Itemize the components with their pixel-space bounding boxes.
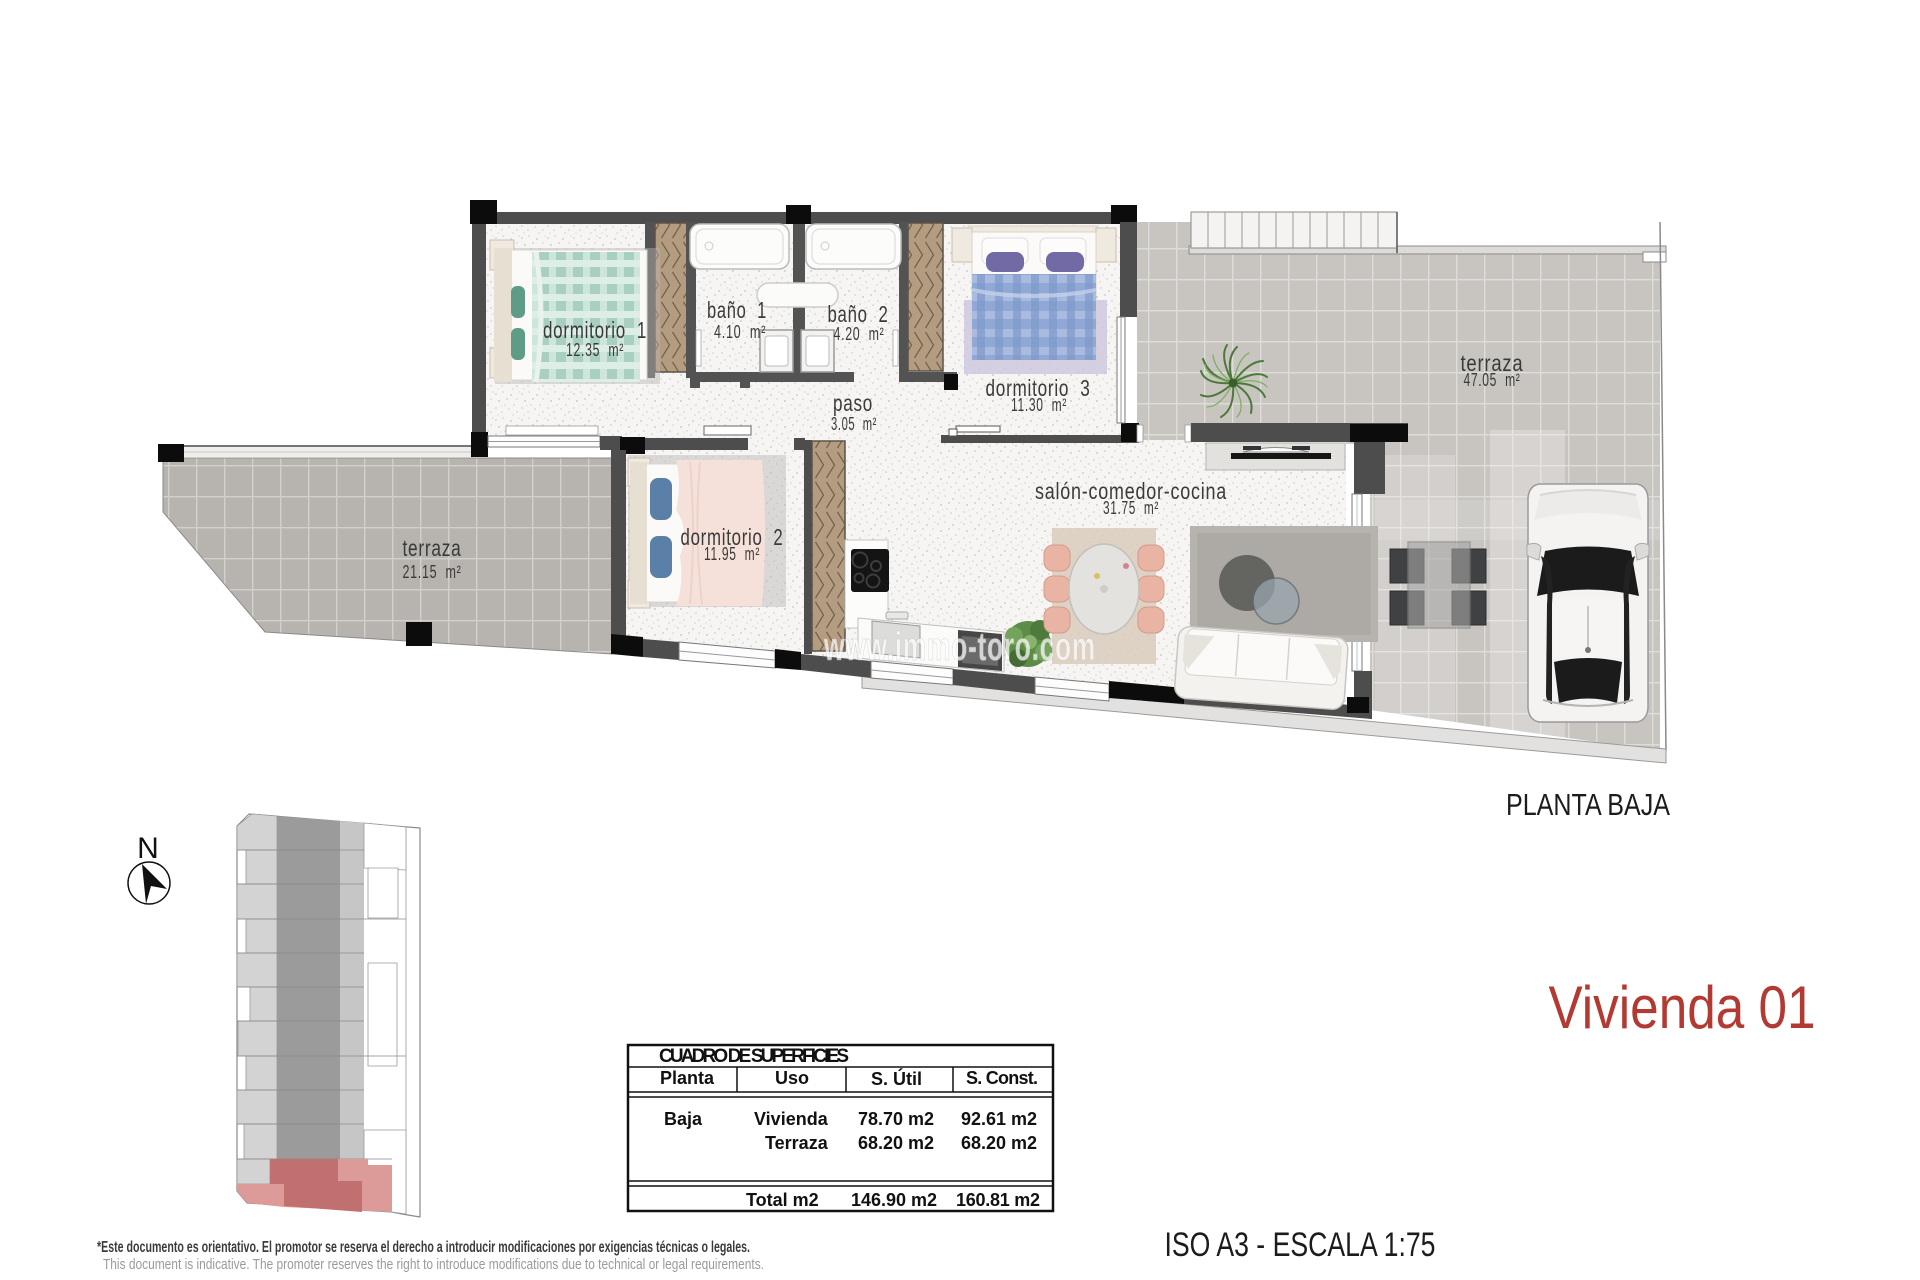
svg-text:3.05 m²: 3.05 m² (831, 414, 877, 434)
svg-text:Total m2: Total m2 (746, 1190, 819, 1210)
svg-text:21.15 m²: 21.15 m² (403, 562, 462, 582)
svg-text:www.immo-toro.com: www.immo-toro.com (823, 625, 1096, 669)
svg-text:146.90 m2: 146.90 m2 (851, 1190, 937, 1210)
svg-text:Terraza: Terraza (765, 1133, 829, 1153)
svg-text:160.81 m2: 160.81 m2 (956, 1190, 1040, 1210)
svg-text:ISO A3 - ESCALA 1:75: ISO A3 - ESCALA 1:75 (1165, 1226, 1436, 1264)
svg-text:This document is indicative. T: This document is indicative. The promote… (103, 1256, 764, 1273)
svg-text:Baja: Baja (664, 1109, 703, 1129)
svg-text:PLANTA BAJA: PLANTA BAJA (1506, 787, 1670, 822)
svg-text:11.95 m²: 11.95 m² (704, 544, 760, 564)
svg-text:S. Útil: S. Útil (871, 1068, 922, 1089)
svg-text:68.20 m2: 68.20 m2 (961, 1133, 1037, 1153)
svg-text:68.20 m2: 68.20 m2 (858, 1133, 934, 1153)
svg-text:Uso: Uso (775, 1068, 809, 1088)
svg-text:4.20 m²: 4.20 m² (834, 324, 885, 344)
svg-text:Planta: Planta (660, 1068, 715, 1088)
svg-text:31.75 m²: 31.75 m² (1103, 498, 1159, 518)
svg-text:paso: paso (833, 390, 873, 416)
svg-text:*Este documento es orientativo: *Este documento es orientativo. El promo… (97, 1239, 750, 1256)
svg-text:Vivienda 01: Vivienda 01 (1549, 974, 1816, 1041)
svg-text:4.10 m²: 4.10 m² (714, 322, 766, 342)
svg-text:78.70 m2: 78.70 m2 (858, 1109, 934, 1129)
svg-text:S. Const.: S. Const. (966, 1068, 1038, 1088)
svg-text:12.35 m²: 12.35 m² (566, 340, 624, 360)
svg-text:N: N (137, 832, 159, 865)
svg-text:terraza: terraza (403, 535, 462, 561)
svg-text:Vivienda: Vivienda (754, 1109, 829, 1129)
svg-text:CUADRO DE SUPERFICIES: CUADRO DE SUPERFICIES (659, 1046, 849, 1067)
svg-text:92.61 m2: 92.61 m2 (961, 1109, 1037, 1129)
svg-text:47.05 m²: 47.05 m² (1464, 370, 1521, 390)
svg-text:baño 1: baño 1 (707, 297, 767, 323)
svg-text:11.30 m²: 11.30 m² (1011, 395, 1067, 415)
